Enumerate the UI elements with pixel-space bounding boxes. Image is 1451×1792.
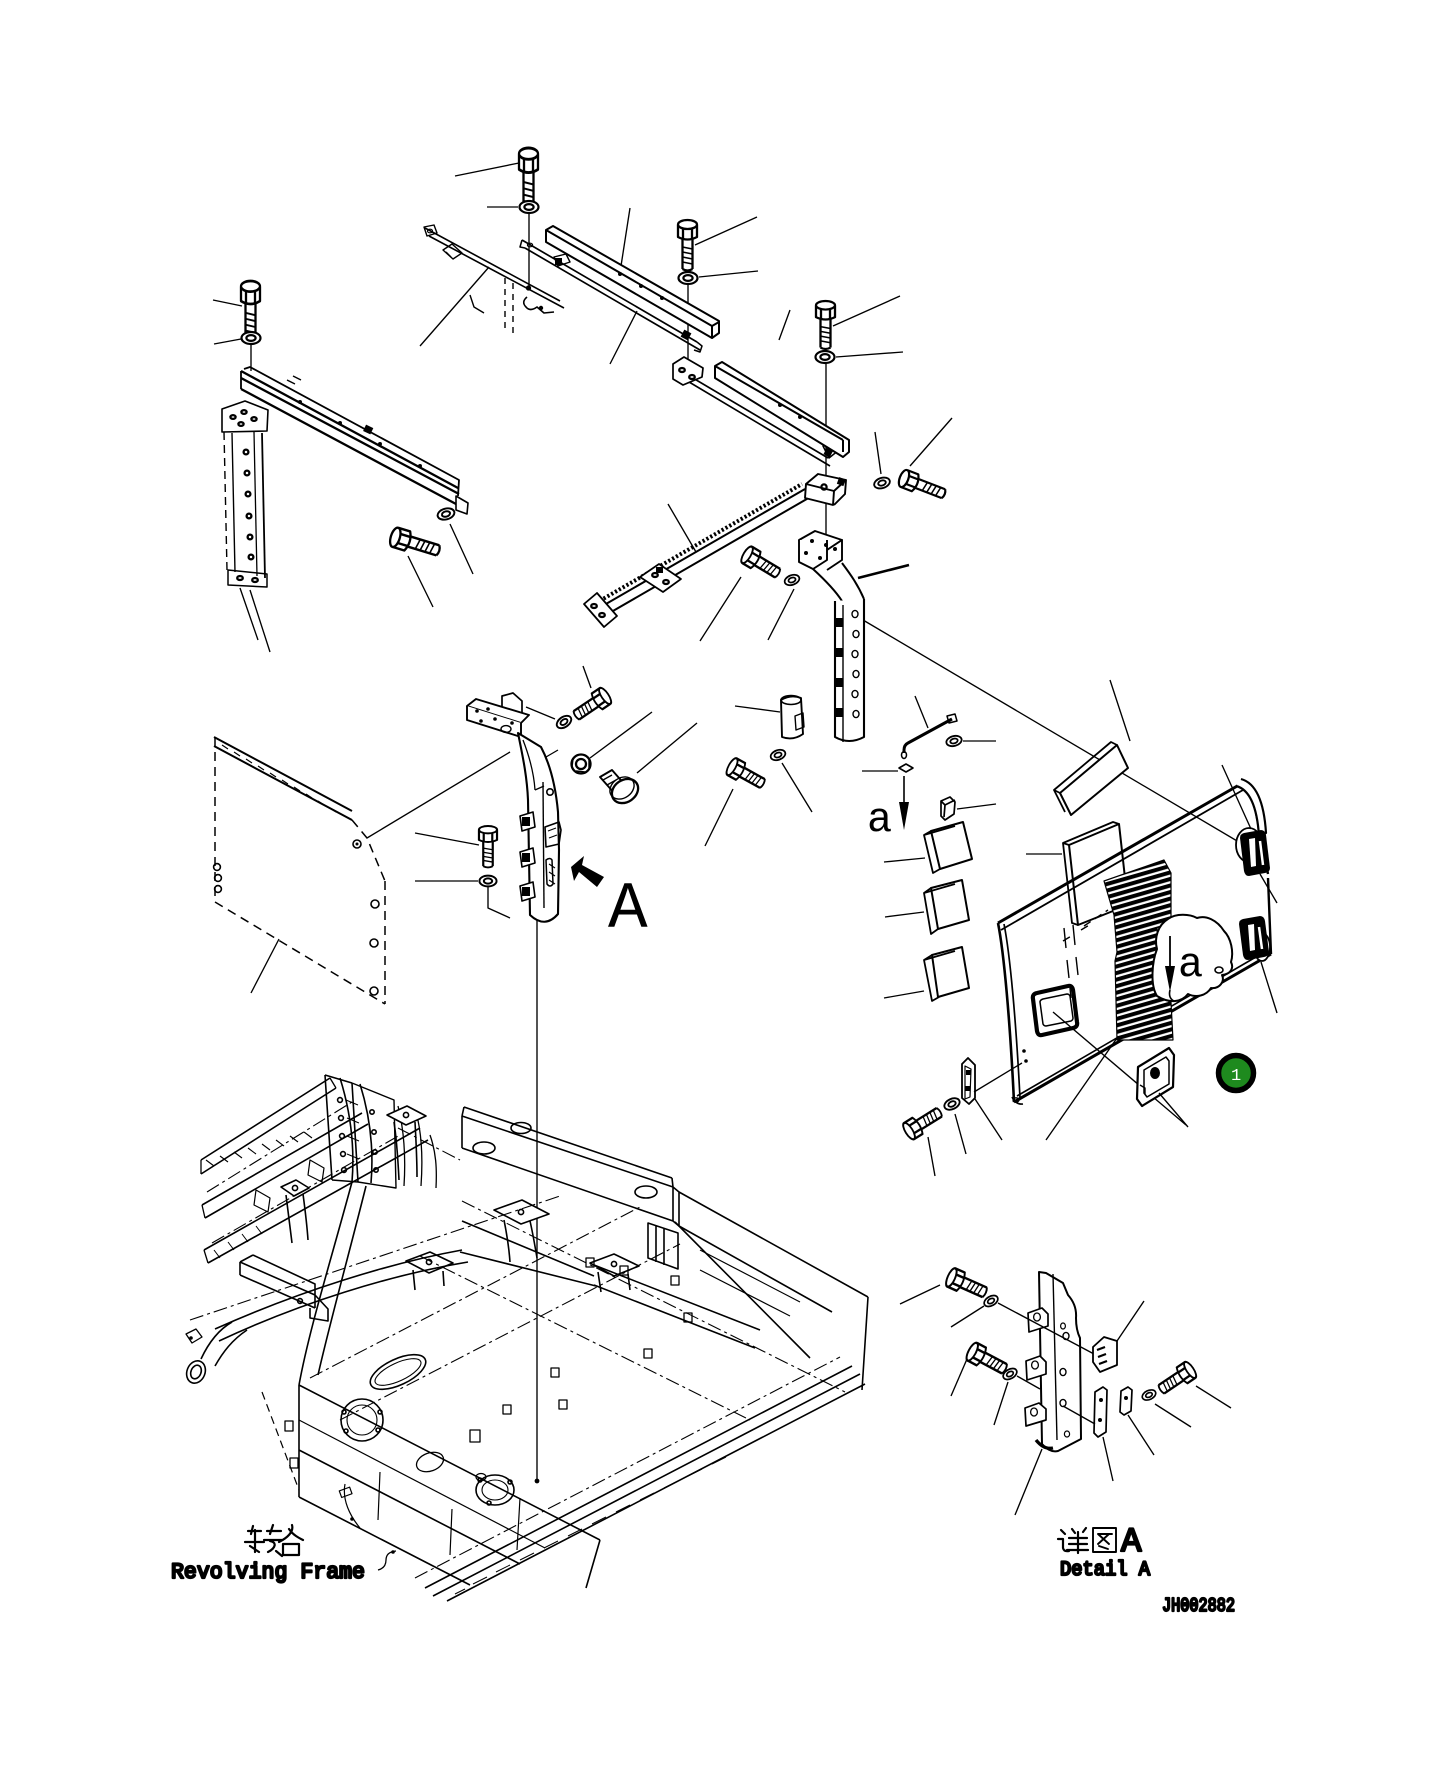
svg-text:a: a (867, 796, 892, 844)
svg-text:A: A (608, 872, 648, 947)
svg-text:Detail A: Detail A (1060, 1559, 1150, 1582)
svg-text:1: 1 (1231, 1067, 1241, 1086)
svg-text:JH002882: JH002882 (1162, 1595, 1235, 1617)
svg-text:a: a (1178, 941, 1203, 989)
svg-text:A: A (1121, 1524, 1142, 1562)
svg-text:Revolving Frame: Revolving Frame (171, 1560, 365, 1585)
